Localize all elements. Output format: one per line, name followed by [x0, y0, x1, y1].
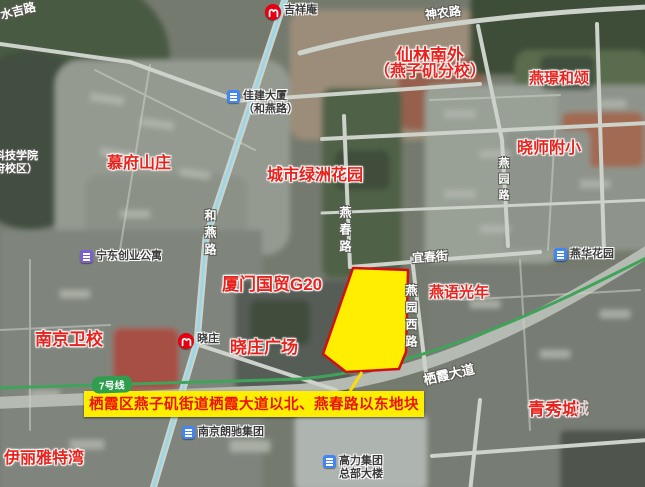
poi-label: 燕华花园: [570, 248, 614, 261]
red-poi-label: 厦门国贸G20: [222, 276, 322, 293]
road-name-label: 宜春街: [412, 250, 449, 264]
metro-line7-badge: 7号线: [92, 375, 132, 393]
satellite-map[interactable]: 栖霞区燕子矶街道栖霞大道以北、燕春路以东地块 7号线 慕府山庄城市绿洲花园仙林南…: [0, 0, 645, 487]
red-poi-label: （燕子矶分校）: [374, 64, 486, 80]
red-poi-label: 燕语光年: [429, 285, 489, 300]
poi-marker[interactable]: 高力集团总部大楼: [323, 455, 383, 480]
poi-label: 南京朗驰集团: [198, 426, 264, 439]
road-name-label-vertical: 和燕路: [204, 209, 216, 260]
poi-label: 佳建大厦（和燕路）: [243, 90, 298, 115]
nanjing-metro-icon[interactable]: [265, 4, 281, 20]
red-poi-label: 燕璟和颂: [529, 71, 589, 86]
poi-marker[interactable]: 佳建大厦（和燕路）: [227, 90, 298, 115]
poi-label: 吉祥庵: [284, 4, 317, 17]
poi-label: 高力集团总部大楼: [339, 455, 383, 480]
building-poi-icon[interactable]: [182, 426, 195, 439]
red-poi-label: 南京卫校: [35, 331, 103, 348]
red-poi-label: 晓庄广场: [230, 339, 298, 356]
building-poi-icon[interactable]: [323, 455, 336, 468]
road-name-label-vertical: 燕园路: [497, 157, 508, 205]
red-poi-label: 城市绿洲花园: [267, 168, 363, 184]
road-name-label: 科技学院: [0, 151, 38, 162]
road-name-label-vertical: 燕春路: [339, 206, 351, 257]
nanjing-metro-icon[interactable]: [178, 333, 194, 349]
red-poi-label: 慕府山庄: [107, 156, 171, 172]
building-poi-icon[interactable]: [554, 248, 567, 261]
road-name-label-vertical: 燕园西路: [405, 284, 417, 352]
metro-station-marker[interactable]: 吉祥庵: [265, 4, 317, 20]
poi-label: 宁东创业公寓: [96, 250, 162, 263]
road-name-label: 府校区）: [0, 164, 38, 175]
building-poi-icon[interactable]: [80, 250, 93, 263]
poi-label: 晓庄: [197, 333, 219, 346]
poi-marker[interactable]: 南京朗驰集团: [182, 426, 264, 439]
red-poi-label: 伊丽雅特湾: [4, 451, 84, 467]
faint-map-label: 城: [573, 402, 589, 418]
red-poi-label: 晓师附小: [517, 141, 581, 157]
poi-marker[interactable]: 燕华花园: [554, 248, 614, 261]
poi-marker[interactable]: 宁东创业公寓: [80, 250, 162, 263]
red-poi-label: 仙林南外: [396, 47, 464, 64]
building-poi-icon[interactable]: [227, 90, 240, 103]
red-poi-label: 青秀城: [528, 401, 579, 418]
metro-station-marker[interactable]: 晓庄: [178, 333, 219, 349]
plot-callout-banner: 栖霞区燕子矶街道栖霞大道以北、燕春路以东地块: [84, 391, 424, 417]
